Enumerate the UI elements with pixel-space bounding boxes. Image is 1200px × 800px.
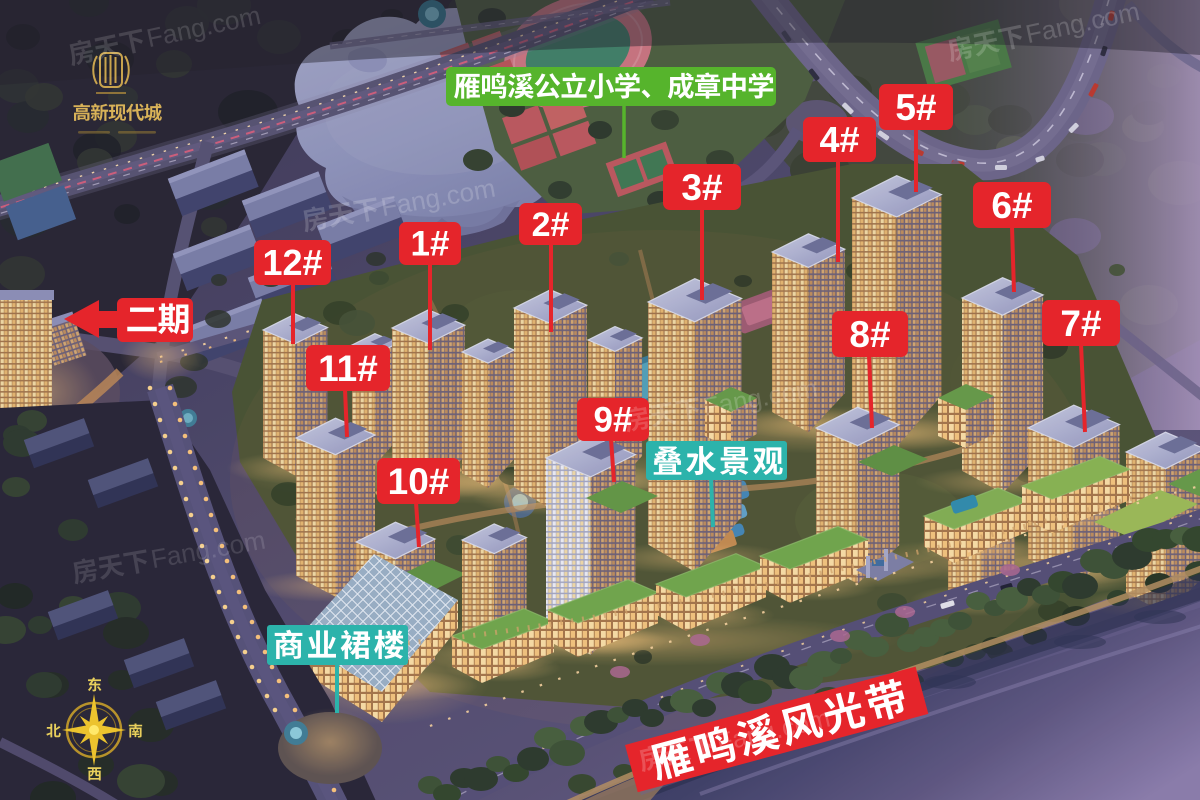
svg-text:12#: 12# <box>262 242 322 283</box>
svg-text:11#: 11# <box>318 348 378 389</box>
svg-text:6#: 6# <box>991 185 1032 226</box>
svg-text:10#: 10# <box>388 461 450 502</box>
svg-text:1#: 1# <box>411 225 450 264</box>
svg-text:8#: 8# <box>849 314 890 355</box>
svg-text:9#: 9# <box>594 401 633 440</box>
svg-text:4#: 4# <box>819 119 859 160</box>
svg-text:2#: 2# <box>532 206 570 244</box>
svg-text:5#: 5# <box>895 87 936 128</box>
svg-text:7#: 7# <box>1060 303 1101 344</box>
svg-text:3#: 3# <box>681 167 722 208</box>
